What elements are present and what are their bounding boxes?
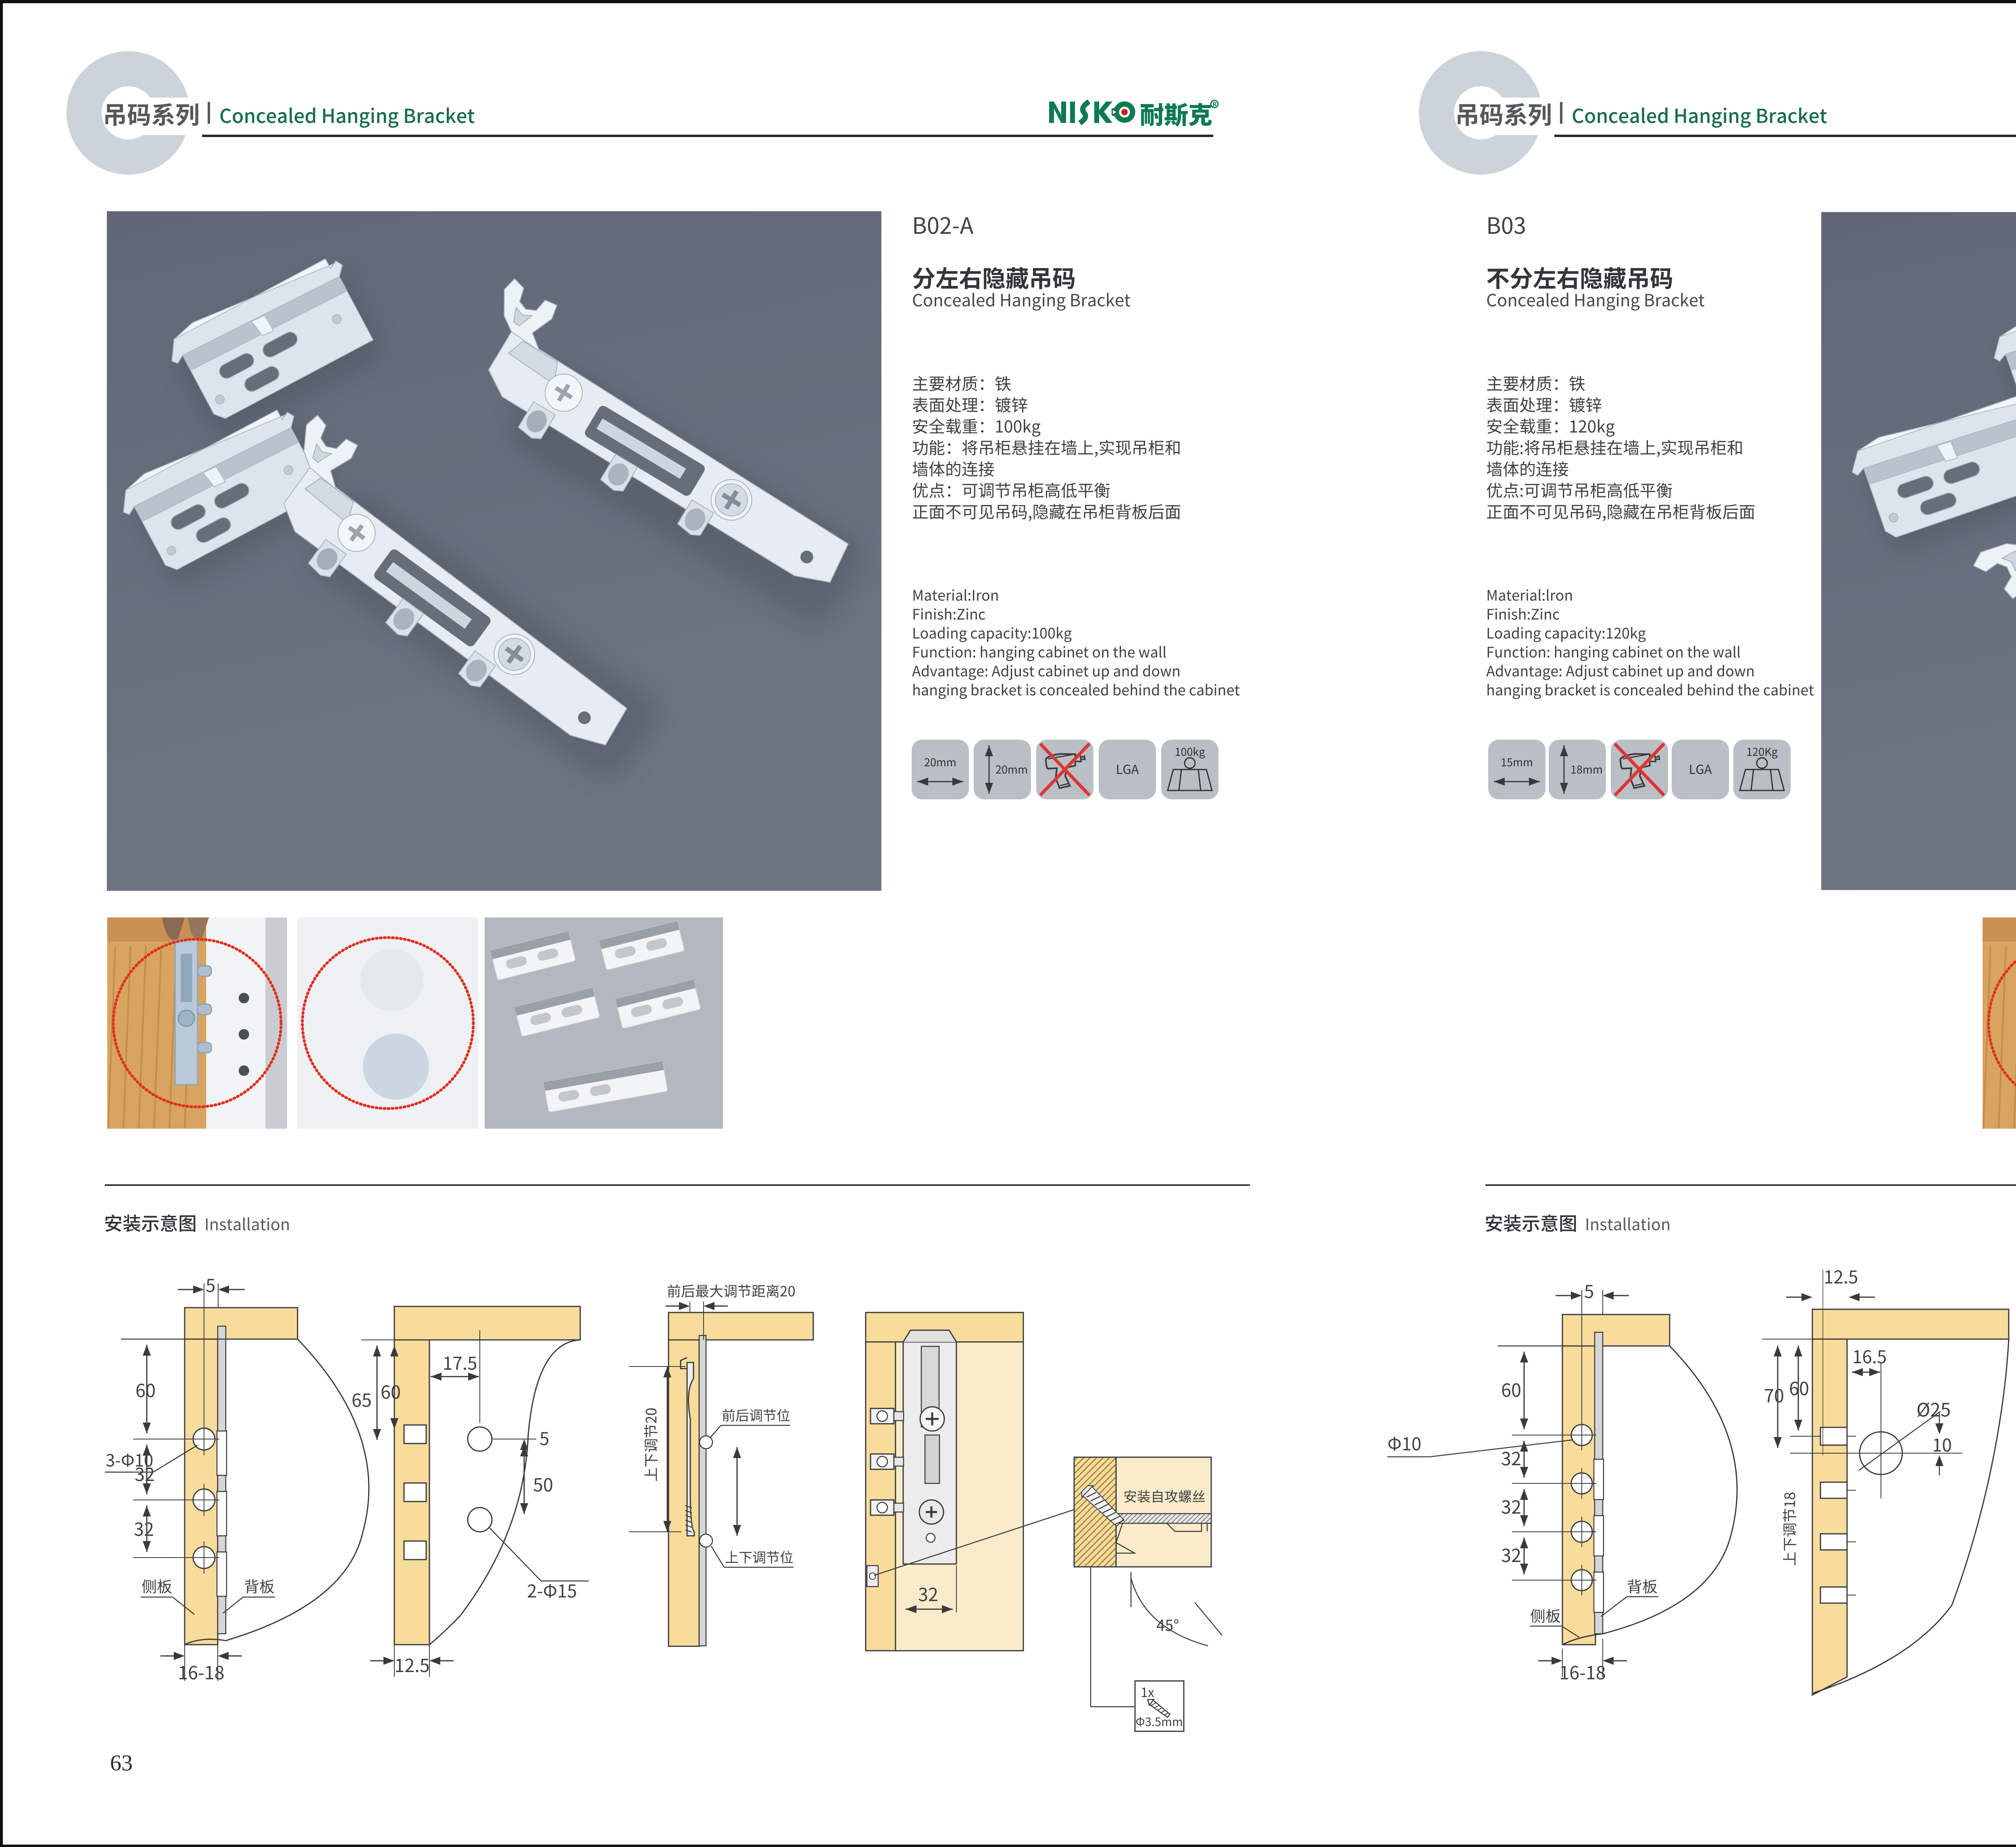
svg-text:63: 63 <box>110 1751 133 1776</box>
